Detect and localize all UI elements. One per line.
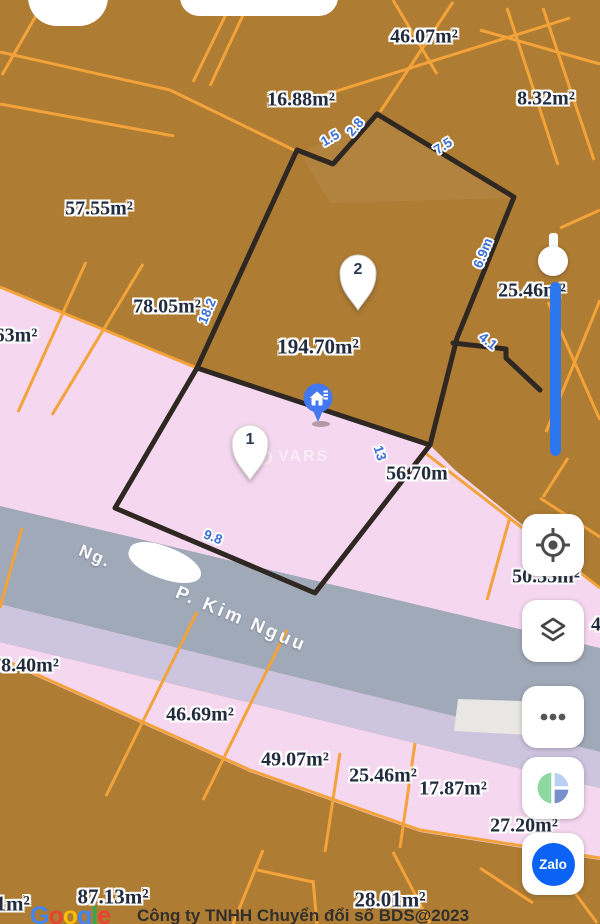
area-label: 63m² — [0, 325, 37, 348]
ellipsis-icon — [535, 699, 571, 735]
pin-number: 1 — [228, 431, 272, 449]
area-label: 56.70m — [386, 463, 448, 486]
map-canvas[interactable]: Ng. P. Kim Nguu VARS 46.07m²16.88m²8.32m… — [0, 0, 600, 924]
area-label: 78.05m² — [133, 296, 201, 319]
area-label: 46.07m² — [390, 26, 458, 49]
area-label: 49.07m² — [261, 749, 329, 772]
zalo-button[interactable]: Zalo — [522, 833, 584, 895]
watermark-text: VARS — [278, 448, 329, 466]
pin-number: 2 — [336, 261, 380, 279]
top-center-overlay — [180, 0, 338, 16]
more-options-button[interactable] — [522, 686, 584, 748]
marker-shadow — [312, 421, 330, 427]
area-label: 78.40m² — [0, 655, 59, 678]
locate-icon — [535, 527, 571, 563]
layers-button[interactable] — [522, 600, 584, 662]
measure-slider-line[interactable] — [550, 282, 561, 456]
layers-icon — [535, 613, 571, 649]
area-label: 57.55m² — [65, 198, 133, 221]
zalo-logo: Zalo — [532, 843, 575, 886]
area-label: 25.46m² — [349, 765, 417, 788]
measure-slider-knob[interactable] — [538, 246, 568, 276]
copyright-text: Công ty TNHH Chuyển đổi số BDS@2023 — [137, 906, 469, 924]
stats-pie-button[interactable] — [522, 757, 584, 819]
locate-button[interactable] — [522, 514, 584, 576]
area-label: 46 — [591, 614, 600, 637]
area-label: 46.69m² — [166, 704, 234, 727]
map-pin-1[interactable]: 1 — [228, 422, 272, 482]
google-logo: Google — [30, 902, 110, 924]
map-pin-2[interactable]: 2 — [336, 252, 380, 312]
pie-chart-icon — [535, 770, 571, 806]
area-label: 8.32m² — [517, 88, 575, 111]
area-label: 11m² — [0, 892, 30, 917]
zalo-label: Zalo — [539, 857, 567, 872]
area-label: 16.88m² — [267, 89, 335, 112]
area-label: 17.87m² — [419, 778, 487, 801]
house-marker[interactable] — [299, 380, 337, 428]
area-label: 194.70m² — [277, 335, 359, 360]
